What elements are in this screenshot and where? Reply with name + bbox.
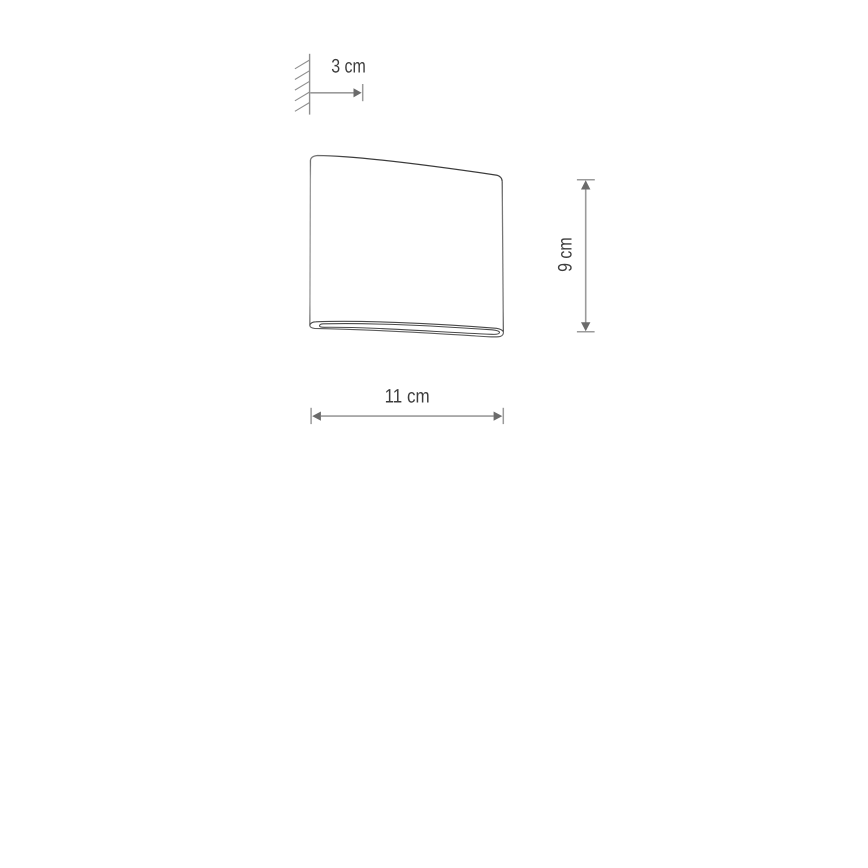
svg-text:9 cm: 9 cm: [554, 237, 576, 272]
svg-text:11 cm: 11 cm: [385, 385, 430, 407]
svg-text:3 cm: 3 cm: [331, 55, 366, 77]
